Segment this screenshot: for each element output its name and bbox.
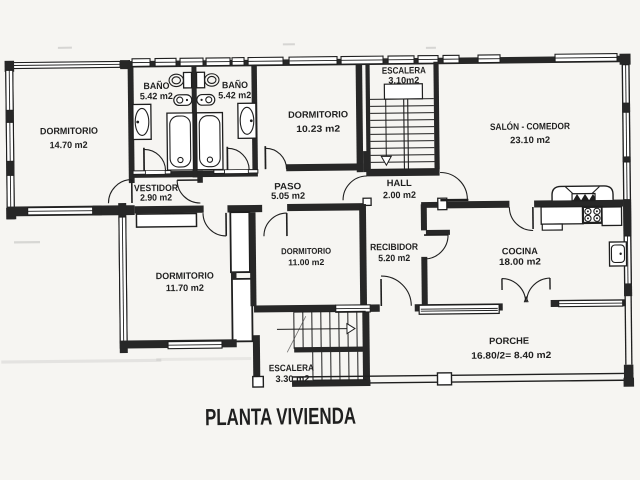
svg-text:16.80/2= 8.40 m2: 16.80/2= 8.40 m2 — [471, 350, 551, 361]
svg-text:PLANTA VIVIENDA: PLANTA VIVIENDA — [205, 403, 356, 431]
svg-text:BAÑO: BAÑO — [222, 80, 248, 90]
svg-text:DORMITORIO: DORMITORIO — [281, 246, 331, 257]
svg-text:2.00 m2: 2.00 m2 — [383, 190, 416, 200]
svg-text:DORMITORIO: DORMITORIO — [156, 271, 214, 282]
svg-text:DORMITORIO: DORMITORIO — [40, 126, 98, 137]
svg-text:11.00 m2: 11.00 m2 — [288, 257, 324, 267]
svg-text:10.23 m2: 10.23 m2 — [296, 124, 340, 134]
svg-text:5.42 m2: 5.42 m2 — [140, 91, 173, 101]
svg-text:3.30 m2: 3.30 m2 — [275, 374, 309, 384]
svg-text:ESCALERA: ESCALERA — [269, 363, 314, 373]
svg-text:5.42 m2: 5.42 m2 — [218, 90, 251, 100]
svg-text:BAÑO: BAÑO — [143, 81, 169, 91]
svg-text:DORMITORIO: DORMITORIO — [288, 109, 348, 120]
svg-text:SALÓN - COMEDOR: SALÓN - COMEDOR — [490, 120, 570, 132]
svg-text:HALL: HALL — [387, 178, 412, 188]
svg-text:5.20 m2: 5.20 m2 — [378, 253, 410, 263]
svg-text:11.70 m2: 11.70 m2 — [166, 283, 204, 293]
svg-text:2.90 m2: 2.90 m2 — [140, 192, 172, 202]
svg-text:PORCHE: PORCHE — [489, 336, 529, 346]
svg-text:5.05 m2: 5.05 m2 — [271, 191, 305, 201]
svg-text:14.70 m2: 14.70 m2 — [50, 140, 88, 150]
svg-text:RECIBIDOR: RECIBIDOR — [370, 242, 418, 253]
svg-text:COCINA: COCINA — [502, 246, 538, 256]
svg-text:ESCALERA: ESCALERA — [382, 65, 426, 75]
svg-text:3.10m2: 3.10m2 — [388, 75, 419, 85]
svg-text:18.00 m2: 18.00 m2 — [499, 257, 541, 267]
svg-text:23.10 m2: 23.10 m2 — [510, 135, 550, 145]
